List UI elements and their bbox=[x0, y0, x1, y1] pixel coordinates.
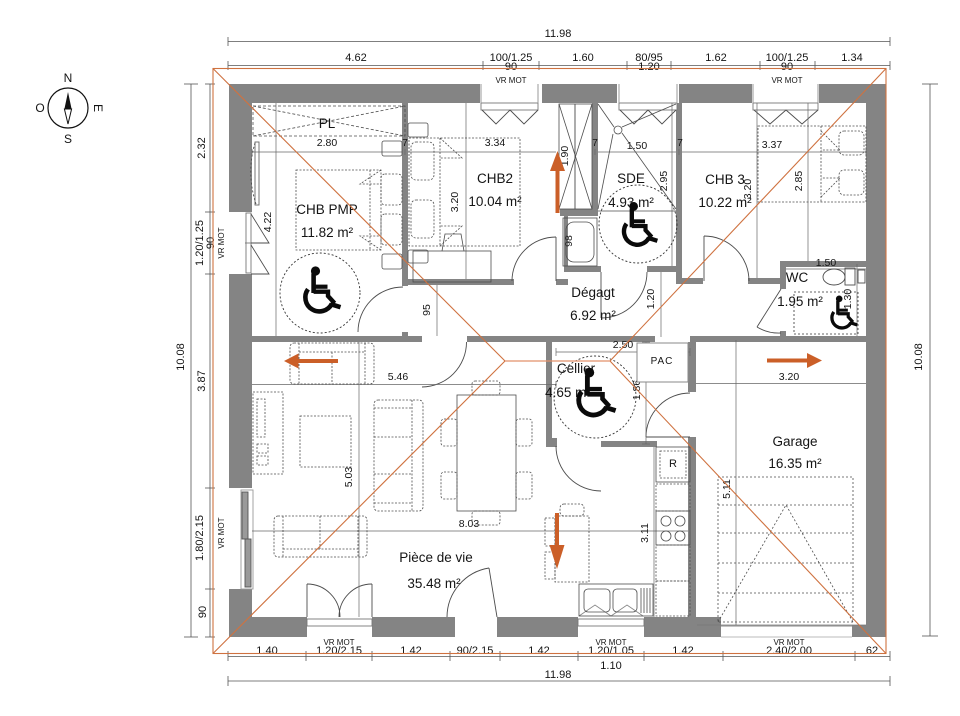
svg-text:3.34: 3.34 bbox=[485, 137, 506, 149]
svg-text:Dégagt: Dégagt bbox=[571, 285, 615, 300]
svg-text:R: R bbox=[669, 458, 677, 470]
svg-text:3.11: 3.11 bbox=[639, 523, 651, 543]
svg-text:90: 90 bbox=[505, 61, 517, 73]
svg-text:10.22 m²: 10.22 m² bbox=[698, 195, 752, 210]
svg-text:4.62: 4.62 bbox=[345, 52, 366, 64]
svg-text:4.65 m²: 4.65 m² bbox=[545, 385, 591, 400]
svg-text:10.08: 10.08 bbox=[913, 343, 925, 371]
svg-text:5.03: 5.03 bbox=[343, 467, 355, 488]
svg-text:VR MOT: VR MOT bbox=[495, 76, 526, 85]
svg-text:2.85: 2.85 bbox=[793, 171, 805, 192]
svg-text:2.50: 2.50 bbox=[613, 339, 634, 351]
svg-text:1.42: 1.42 bbox=[528, 645, 549, 657]
svg-text:95: 95 bbox=[421, 304, 433, 316]
svg-text:1.40: 1.40 bbox=[256, 645, 277, 657]
svg-text:E: E bbox=[91, 104, 105, 112]
svg-text:1.34: 1.34 bbox=[841, 52, 862, 64]
svg-text:Pièce de vie: Pièce de vie bbox=[399, 550, 473, 565]
svg-text:1.50: 1.50 bbox=[816, 257, 837, 269]
svg-text:6.92 m²: 6.92 m² bbox=[570, 308, 616, 323]
svg-text:5.46: 5.46 bbox=[388, 371, 409, 383]
svg-text:2.32: 2.32 bbox=[196, 137, 208, 158]
svg-text:90: 90 bbox=[781, 61, 793, 73]
svg-text:3.37: 3.37 bbox=[762, 139, 783, 151]
svg-text:1.42: 1.42 bbox=[672, 645, 693, 657]
svg-text:1.60: 1.60 bbox=[572, 52, 593, 64]
svg-text:3.20: 3.20 bbox=[449, 192, 461, 213]
svg-text:90: 90 bbox=[205, 237, 217, 249]
svg-text:2.95: 2.95 bbox=[658, 171, 670, 192]
svg-text:62: 62 bbox=[866, 645, 878, 657]
svg-text:7: 7 bbox=[402, 138, 408, 149]
svg-text:VR MOT: VR MOT bbox=[323, 638, 354, 647]
svg-text:WC: WC bbox=[786, 270, 809, 285]
svg-text:1.42: 1.42 bbox=[400, 645, 421, 657]
svg-text:1.95 m²: 1.95 m² bbox=[777, 294, 823, 309]
svg-text:11.98: 11.98 bbox=[545, 669, 572, 681]
svg-text:VR MOT: VR MOT bbox=[217, 517, 226, 548]
svg-text:4.22: 4.22 bbox=[262, 212, 274, 233]
svg-text:VR MOT: VR MOT bbox=[595, 638, 626, 647]
svg-text:10.04 m²: 10.04 m² bbox=[468, 194, 522, 209]
svg-text:3.87: 3.87 bbox=[196, 370, 208, 391]
svg-text:Garage: Garage bbox=[772, 434, 817, 449]
svg-text:VR MOT: VR MOT bbox=[773, 638, 804, 647]
svg-text:90/2.15: 90/2.15 bbox=[457, 645, 494, 657]
svg-text:1.50: 1.50 bbox=[627, 140, 648, 152]
svg-text:1.80/2.15: 1.80/2.15 bbox=[194, 515, 206, 561]
svg-text:N: N bbox=[64, 71, 73, 85]
svg-text:CHB2: CHB2 bbox=[477, 171, 513, 186]
svg-text:PL: PL bbox=[319, 116, 336, 131]
svg-text:3.20: 3.20 bbox=[779, 371, 800, 383]
svg-text:11.82 m²: 11.82 m² bbox=[301, 225, 354, 240]
svg-text:CHB 3: CHB 3 bbox=[705, 172, 745, 187]
svg-text:1.20: 1.20 bbox=[638, 61, 659, 73]
svg-text:35.48 m²: 35.48 m² bbox=[407, 576, 461, 591]
svg-text:O: O bbox=[35, 101, 44, 115]
svg-text:7: 7 bbox=[677, 138, 683, 149]
svg-text:1.20: 1.20 bbox=[645, 289, 657, 310]
svg-text:VR MOT: VR MOT bbox=[771, 76, 802, 85]
svg-text:10.08: 10.08 bbox=[175, 343, 187, 371]
svg-text:2.80: 2.80 bbox=[317, 137, 338, 149]
svg-text:PAC: PAC bbox=[651, 356, 674, 367]
svg-text:SDE: SDE bbox=[617, 171, 645, 186]
svg-text:90: 90 bbox=[197, 606, 209, 618]
svg-text:7: 7 bbox=[592, 138, 598, 149]
svg-text:S: S bbox=[64, 132, 72, 146]
svg-text:1.10: 1.10 bbox=[600, 660, 621, 672]
svg-text:98: 98 bbox=[563, 235, 575, 247]
svg-text:8.03: 8.03 bbox=[459, 518, 480, 530]
svg-text:VR MOT: VR MOT bbox=[217, 227, 226, 258]
svg-text:11.98: 11.98 bbox=[545, 28, 572, 40]
svg-text:16.35 m²: 16.35 m² bbox=[768, 456, 822, 471]
svg-text:1.62: 1.62 bbox=[705, 52, 726, 64]
